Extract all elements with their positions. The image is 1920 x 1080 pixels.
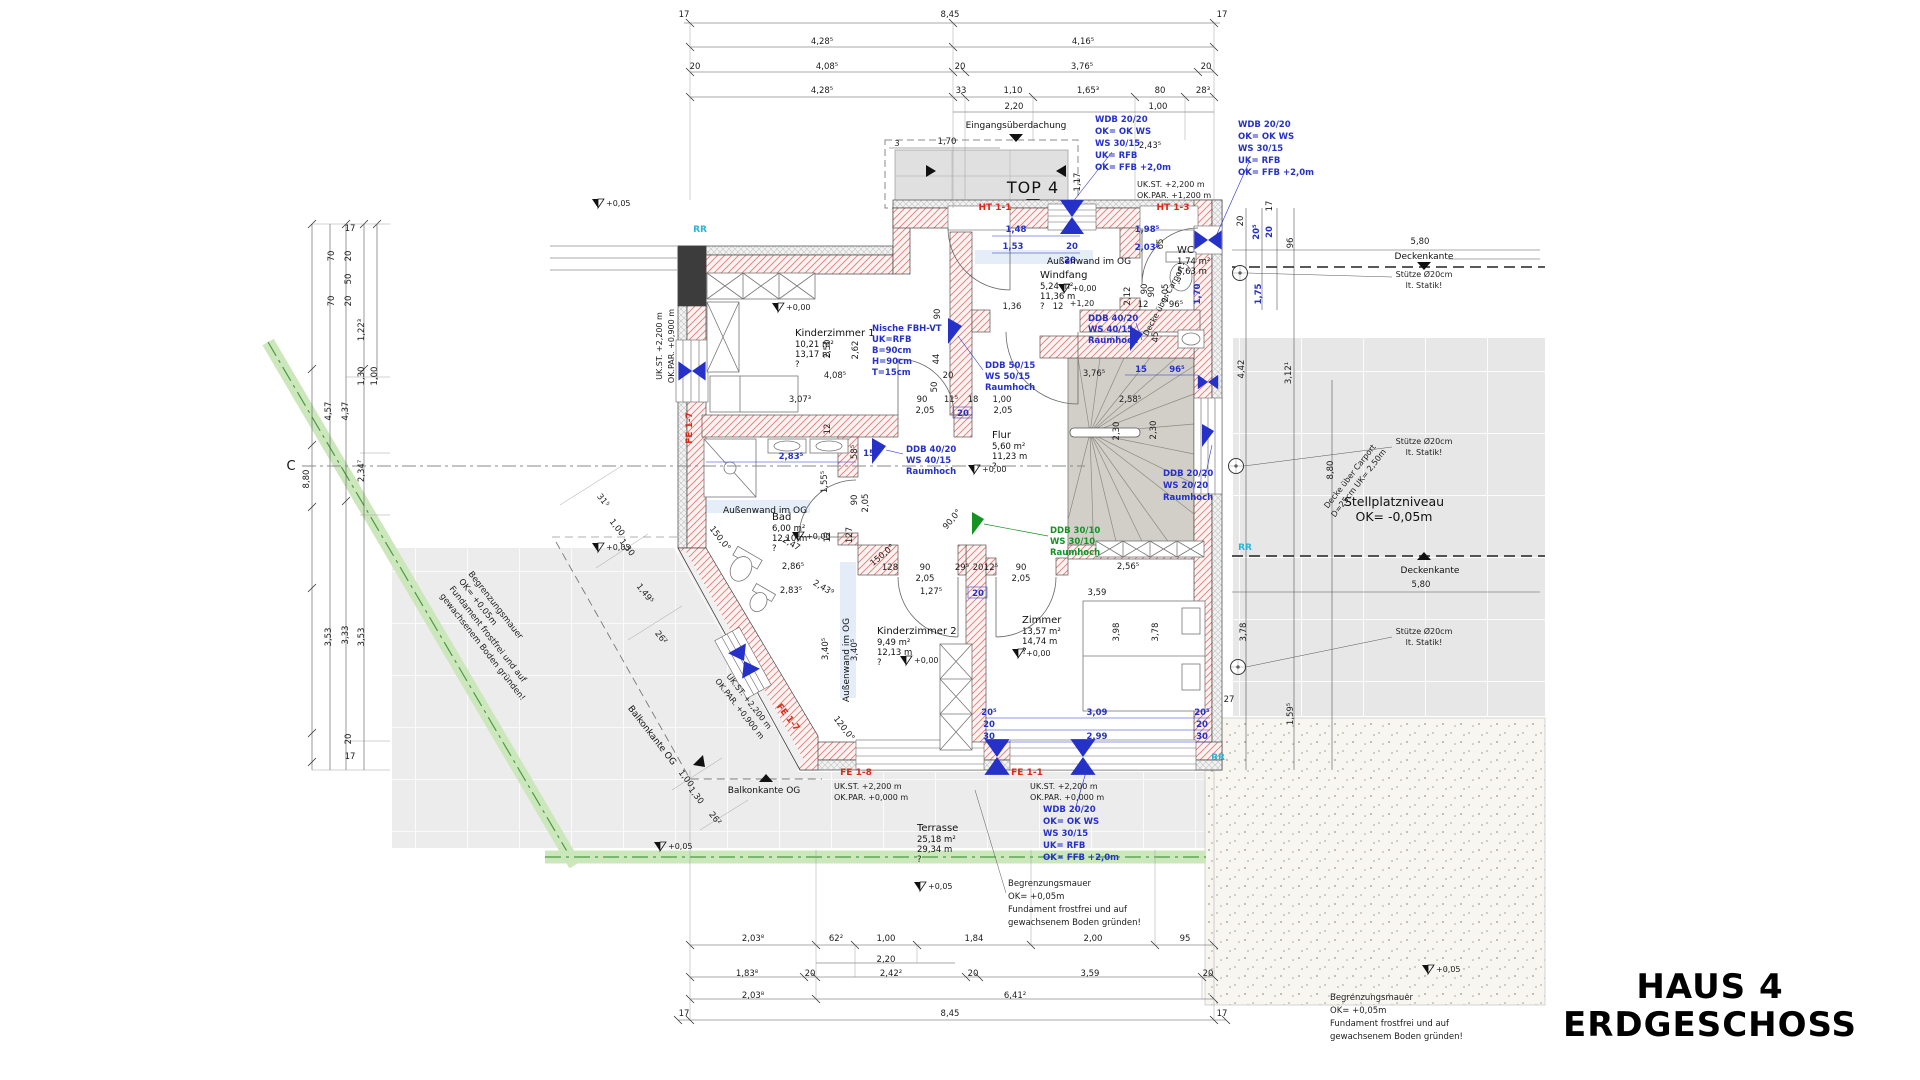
dim-label: HT 1-3 [1156, 203, 1189, 213]
dim-label: 1,00 [877, 934, 896, 944]
dim-label: 33 [956, 86, 967, 96]
annotation-stuetze-2-line1: lt. Statik! [1406, 448, 1443, 457]
level-marker-value: +0,00 [1072, 284, 1097, 293]
dim-label: 1,53 [1003, 242, 1024, 252]
dim-label: 1,17 [1073, 173, 1083, 192]
annotation-ddb-30-green-line0: DDB 30/10 [1050, 526, 1100, 536]
room-note-terrasse: ? [917, 855, 922, 865]
room-area-kinderzimmer-2: 9,49 m² [877, 638, 910, 648]
dim-label: 1,00 [607, 517, 627, 538]
dim-label: 2,05 [916, 574, 935, 584]
dim-label: 1,98⁵ [1135, 225, 1160, 235]
dim-label: 20 [805, 969, 816, 979]
dim-label: 2,30 [1112, 422, 1122, 441]
level-marker-value: +0,05 [928, 882, 953, 891]
dim-label: 3,53 [324, 628, 334, 647]
floor-plan-page: 178,45174,28⁵4,16⁵204,08⁵203,76⁵204,28⁵3… [0, 0, 1920, 1080]
dim-label: 96⁵ [1169, 365, 1185, 375]
dim-label: 96⁵ [1169, 300, 1183, 310]
annotation-stuetze-2-line0: Stütze Ø20cm [1396, 436, 1453, 446]
annotation-stellplatz-line1: OK= -0,05m [1355, 509, 1432, 524]
dim-label: 20 [1201, 62, 1212, 72]
dim-label: 4,57 [324, 402, 334, 421]
annotation-ukst-left-line1: OK.PAR. +0,900 m [667, 309, 676, 383]
annotation-ddb-20-line2: Raumhoch [1163, 493, 1213, 503]
dim-label: 1,27⁵ [920, 587, 942, 597]
dim-label: 2,20 [1005, 102, 1024, 112]
room-perimeter-kinderzimmer-2: 12,13 m [877, 648, 912, 658]
dim-label: 2,05 [861, 494, 871, 513]
dim-label: 8,80 [302, 470, 312, 489]
annotation-begrenzung-right-line2: Fundament frostfrei und auf [1330, 1019, 1450, 1029]
annotation-nische-line3: H=90cm [872, 357, 912, 367]
dim-label: 17 [345, 752, 356, 762]
dim-label: 1,65³ [1077, 86, 1099, 96]
dim-label: 1,10 [1004, 86, 1023, 96]
level-marker-icon [914, 882, 926, 891]
carport-area [1233, 338, 1545, 716]
dim-label: 4,08⁵ [816, 62, 838, 72]
dim-label: 58⁵ [850, 445, 860, 459]
dim-label: 2,30 [1149, 421, 1159, 440]
room-perimeter-kinderzimmer-1: 13,17 m [795, 350, 830, 360]
annotation-wdb-top-b-line4: OK= FFB +2,0m [1238, 168, 1314, 178]
dim-label: 2,42² [880, 969, 902, 979]
annotation-ukst-top-right-line0: UK.ST. +2,200 m [1137, 180, 1205, 189]
dim-label: 2,05 [916, 406, 935, 416]
annotation-wdb-top-a-line2: WS 30/15 [1095, 139, 1140, 149]
dim-label: 62² [829, 934, 843, 944]
dim-label: 1,75 [1254, 283, 1264, 304]
level-marker-value: +0,00 [786, 303, 811, 312]
level-marker-value: +0,00 [982, 465, 1007, 474]
dim-label: 20 [973, 563, 984, 573]
annotation-wdb-bottom-line3: UK= RFB [1043, 841, 1085, 851]
level-marker-value: +0,05 [606, 199, 631, 208]
drawing-title-line1: HAUS 4 [1530, 968, 1890, 1006]
dim-label: 2,20 [877, 955, 896, 965]
dim-label: 4,42 [1237, 360, 1247, 379]
dim-label: 30 [1196, 732, 1208, 742]
dim-label: 20⁵ [1194, 708, 1210, 718]
dim-label: 28³ [1196, 86, 1210, 96]
dim-label: 20 [943, 371, 954, 381]
dim-label: Eingangsüberdachung [966, 121, 1067, 131]
room-area-terrasse: 25,18 m² [917, 835, 956, 845]
dim-label: 2,05 [1012, 574, 1031, 584]
annotation-wdb-top-a-line1: OK= OK WS [1095, 127, 1151, 137]
annotation-wdb-top-b-line3: UK= RFB [1238, 156, 1280, 166]
dim-label: 4,28⁵ [811, 37, 833, 47]
annotation-wdb-bottom-line0: WDB 20/20 [1043, 805, 1096, 815]
dim-label: 1,30 [357, 367, 367, 386]
dim-label: 1,70 [938, 137, 957, 147]
dim-label: 12 [1053, 302, 1064, 312]
annotation-begrenzung-right-line0: Begrenzungsmauer [1330, 993, 1414, 1003]
room-label-flur: Flur [992, 430, 1012, 441]
annotation-stuetze-3-line1: lt. Statik! [1406, 638, 1443, 647]
annotation-wdb-bottom-line4: OK= FFB +2,0m [1043, 853, 1119, 863]
annotation-nische-line2: B=90cm [872, 346, 911, 356]
annotation-ddb-40-wc-line1: WS 40/15 [1088, 325, 1133, 335]
annotation-begrenzung-center-line1: OK= +0,05m [1008, 892, 1064, 902]
dim-label: 20 [344, 296, 354, 307]
room-area-kinderzimmer-1: 10,21 m² [795, 340, 834, 350]
dim-label: 96 [1286, 238, 1296, 249]
dim-label: 4,08⁵ [824, 371, 846, 381]
annotation-wdb-top-a-line3: UK= RFB [1095, 151, 1137, 161]
annotation-begrenzung-center-line3: gewachsenem Boden gründen! [1008, 918, 1141, 928]
dim-label: 1,00 [1149, 102, 1168, 112]
dim-label: 20⁵ [1252, 224, 1262, 240]
annotation-ukst-fe18-line1: OK.PAR. +0,000 m [834, 793, 908, 802]
room-perimeter-zimmer: 14,74 m [1022, 637, 1057, 647]
dim-label: 44 [932, 354, 942, 365]
dim-label: 20 [983, 720, 995, 730]
dim-label: 1,00 [993, 395, 1012, 405]
room-perimeter-flur: 11,23 m [992, 452, 1027, 462]
dim-label: 31⁵ [594, 492, 611, 509]
dim-label: 30 [1068, 225, 1080, 235]
dim-label: 2,12 [1123, 287, 1133, 306]
annotation-ddb-20-line0: DDB 20/20 [1163, 469, 1213, 479]
dim-label: Außenwand im OG [723, 506, 807, 516]
dim-label: TOP 4 [1006, 178, 1059, 197]
annotation-ddb-40-wc-line2: Raumhoch [1088, 336, 1138, 346]
dim-label: 90 [933, 309, 943, 320]
dim-label: RR [1211, 753, 1225, 763]
dim-label: 15 [1135, 365, 1147, 375]
dim-label: 20 [957, 409, 969, 419]
gravel-area [1205, 718, 1545, 1005]
dim-label: 90 [917, 395, 928, 405]
dim-label: 5,80 [1412, 580, 1431, 590]
dim-label: 50 [344, 274, 354, 285]
dim-label: 17 [1217, 10, 1228, 20]
annotation-ddb-30-green-line1: WS 30/10 [1050, 537, 1095, 547]
dim-label: 1,00 [370, 367, 380, 386]
dim-label: C [286, 459, 295, 474]
dim-label: 90 [920, 563, 931, 573]
dim-label: 2,99 [1087, 732, 1108, 742]
level-marker-value: +0,05 [1436, 965, 1461, 974]
annotation-wdb-top-b-line0: WDB 20/20 [1238, 120, 1291, 130]
dim-label: 20 [955, 62, 966, 72]
dim-label: 4,16⁵ [1072, 37, 1094, 47]
dim-label: 2,58⁵ [1119, 395, 1141, 405]
dim-label: 20 [690, 62, 701, 72]
level-marker-value: +0,00 [914, 656, 939, 665]
dim-label: 11⁵ [944, 395, 958, 405]
annotation-nische-line1: UK=RFB [872, 335, 911, 345]
dim-label: HT 1-1 [978, 203, 1011, 213]
annotation-begrenzung-right-line3: gewachsenem Boden gründen! [1330, 1032, 1463, 1042]
dim-label: 1,84 [965, 934, 984, 944]
annotation-ddb-40-bad-line0: DDB 40/20 [906, 445, 956, 455]
dim-label: 2,86⁵ [782, 562, 804, 572]
level-marker-icon [592, 199, 604, 208]
dim-label: 3,09 [1087, 708, 1108, 718]
dim-label: 8,45 [941, 1009, 960, 1019]
dim-label: 1,48 [1006, 225, 1027, 235]
room-label-kinderzimmer-2: Kinderzimmer 2 [877, 626, 957, 637]
dim-label: 17 [1265, 201, 1275, 212]
annotation-wdb-top-b-line2: WS 30/15 [1238, 144, 1283, 154]
dim-label: RR [693, 225, 707, 235]
annotation-stellplatz-line0: Stellplatzniveau [1344, 494, 1444, 509]
dim-label: 3,59 [1081, 969, 1100, 979]
dim-label: 2,34⁷ [357, 459, 367, 482]
annotation-begrenzung-right-line1: OK= +0,05m [1330, 1006, 1386, 1016]
dim-label: 20 [972, 589, 984, 599]
dim-label: 20 [1203, 969, 1214, 979]
dim-label: Außenwand im OG [1047, 257, 1131, 267]
dim-label: 90 [1016, 563, 1027, 573]
dim-label: 2,03⁵ [1135, 243, 1160, 253]
dim-label: 8,80 [1326, 461, 1336, 480]
dim-label: 30 [983, 732, 995, 742]
dim-label: 2,00 [1084, 934, 1103, 944]
dim-label: 20 [1236, 216, 1246, 227]
dim-label: 1,83⁸ [736, 969, 759, 979]
dim-label: 127 [845, 527, 855, 543]
annotation-wdb-top-a-line0: WDB 20/20 [1095, 115, 1148, 125]
dim-label: 3,53 [357, 628, 367, 647]
dim-label: 95 [1180, 934, 1191, 944]
annotation-nische-line4: T=15cm [872, 368, 911, 378]
dim-label: 3,07³ [789, 395, 811, 405]
dim-label: FE 1-1 [1011, 768, 1043, 778]
dim-label: 3,78 [1151, 623, 1161, 642]
dim-label: 70 [327, 251, 337, 262]
annotation-begrenzung-center-line2: Fundament frostfrei und auf [1008, 905, 1128, 915]
annotation-begrenzung-center-line0: Begrenzungsmauer [1008, 879, 1092, 889]
room-note-bad: ? [772, 544, 777, 554]
room-note-kinderzimmer-2: ? [877, 658, 882, 668]
dim-label: 3,33 [341, 626, 351, 645]
dim-label: 29⁵ [955, 563, 969, 573]
dim-label: 2,03⁸ [742, 991, 765, 1001]
annotation-ddb-20-line1: WS 20/20 [1163, 481, 1208, 491]
dim-label: 6,41² [1004, 991, 1026, 1001]
room-label-bad: Bad [772, 512, 791, 523]
annotation-ddb-40-wc-line0: DDB 40/20 [1088, 314, 1138, 324]
dim-label: FE 1-7 [685, 412, 695, 444]
dim-label: 12 [1138, 300, 1149, 310]
dim-label: 2,03⁸ [742, 934, 765, 944]
room-label-wc: WC [1177, 245, 1194, 256]
dim-label: 90 [1147, 287, 1157, 298]
dim-label: 3,78 [1239, 623, 1249, 642]
annotation-wdb-top-b-line1: OK= OK WS [1238, 132, 1294, 142]
dim-label: 1,36 [1003, 302, 1022, 312]
dim-label: Balkonkante OG [728, 786, 801, 796]
room-perimeter-terrasse: 29,34 m [917, 845, 952, 855]
dim-label: 3,76⁵ [1071, 62, 1093, 72]
dim-label: 20 [1265, 226, 1275, 238]
dim-label: 20 [344, 251, 354, 262]
dim-label: 2,56⁵ [1117, 562, 1139, 572]
dim-label: 17 [679, 10, 690, 20]
dim-label: 20⁵ [981, 708, 997, 718]
annotation-wdb-bottom-line1: OK= OK WS [1043, 817, 1099, 827]
dim-label: 17 [345, 224, 356, 234]
annotation-wdb-bottom-line2: WS 30/15 [1043, 829, 1088, 839]
dim-label: 1,22³ [357, 319, 367, 341]
annotation-stuetze-1-line0: Stütze Ø20cm [1396, 269, 1453, 279]
dim-label: 2,05 [994, 406, 1013, 416]
room-note-kinderzimmer-1: ? [795, 360, 800, 370]
dim-label: Deckenkante [1395, 252, 1454, 262]
dim-label: 17 [1217, 1009, 1228, 1019]
dim-label: 1,55⁵ [820, 471, 830, 493]
annotation-ddb-50-line2: Raumhoch [985, 383, 1035, 393]
annotation-ukst-left-line0: UK.ST. +2,200 m [655, 312, 664, 380]
dim-label: 5,80 [1411, 237, 1430, 247]
dim-label: 3,40⁵ [821, 638, 831, 660]
dim-label: 20 [344, 734, 354, 745]
annotation-ukst-top-right-line1: OK.PAR. +1,200 m [1137, 191, 1211, 200]
dim-label: 2,43⁵ [1139, 141, 1161, 151]
dim-label: Deckenkante [1401, 566, 1460, 576]
dim-label: 4,37 [341, 402, 351, 421]
room-label-terrasse: Terrasse [916, 823, 958, 834]
dim-label: 128 [882, 563, 898, 573]
room-note-windfang: ? [1040, 302, 1045, 312]
dim-label: Außenwand im OG [842, 618, 852, 702]
room-label-kinderzimmer-1: Kinderzimmer 1 [795, 328, 875, 339]
level-marker-value: +0,00 [1026, 649, 1051, 658]
dim-label: 2,83⁵ [779, 452, 804, 462]
dim-label: 2,83⁵ [780, 586, 802, 596]
dim-label: 3,12¹ [1284, 362, 1294, 384]
room-area-zimmer: 13,57 m² [1022, 627, 1061, 637]
level-marker-value: +0,05 [606, 543, 631, 552]
room-perimeter-windfang: 11,36 m [1040, 292, 1075, 302]
dim-label: 12⁵ [984, 563, 998, 573]
room-area-flur: 5,60 m² [992, 442, 1025, 452]
annotation-ddb-30-green-line2: Raumhoch [1050, 548, 1100, 558]
annotation-wdb-top-a-line4: OK= FFB +2,0m [1095, 163, 1171, 173]
dim-label: 1,70 [1193, 283, 1203, 304]
level-marker-value: +0,05 [668, 842, 693, 851]
dim-label: 20 [1066, 242, 1078, 252]
dim-label: 50 [930, 382, 940, 393]
dim-label: 20 [1196, 720, 1208, 730]
dim-label: 2,62 [851, 341, 861, 360]
dim-label: 3,98 [1112, 623, 1122, 642]
annotation-ukst-fe18-line0: UK.ST. +2,200 m [834, 782, 902, 791]
level-marker-value: +0,00 [806, 532, 831, 541]
room-area-wc: 1,74 m² [1177, 257, 1210, 267]
drawing-title-line2: ERDGESCHOSS [1530, 1006, 1890, 1044]
annotation-ukst-fe11-line0: UK.ST. +2,200 m [1030, 782, 1098, 791]
dim-label: FE 1-8 [840, 768, 872, 778]
dim-label: 45 [1151, 332, 1161, 343]
dim-label: 70 [327, 296, 337, 307]
annotation-ddb-40-bad-line1: WS 40/15 [906, 456, 951, 466]
annotation-ddb-50-line1: WS 50/15 [985, 372, 1030, 382]
annotation-stuetze-3-line0: Stütze Ø20cm [1396, 626, 1453, 636]
annotation-ddb-50-line0: DDB 50/15 [985, 361, 1035, 371]
annotation-ddb-40-bad-line2: Raumhoch [906, 467, 956, 477]
annotation-stuetze-1-line1: lt. Statik! [1406, 281, 1443, 290]
dim-label: 1,59⁵ [1286, 703, 1296, 725]
drawing-title: HAUS 4 ERDGESCHOSS [1530, 968, 1890, 1044]
dim-label: 12 [823, 424, 833, 435]
dim-label: 3,76⁵ [1083, 369, 1105, 379]
dim-label: 80 [1155, 86, 1166, 96]
floor-plan-drawing: 178,45174,28⁵4,16⁵204,08⁵203,76⁵204,28⁵3… [0, 0, 1920, 1080]
dim-label: 3,59 [1088, 588, 1107, 598]
room-area-bad: 6,00 m² [772, 524, 805, 534]
dim-label: 90 [850, 495, 860, 506]
dim-label: 15 [863, 449, 875, 459]
annotation-nische-line0: Nische FBH-VT [872, 324, 942, 334]
dim-label: 20 [968, 969, 979, 979]
dim-label: 18 [968, 395, 979, 405]
dim-label: 8,45 [941, 10, 960, 20]
dim-label: 27 [1224, 695, 1235, 705]
room-label-windfang: Windfang [1040, 270, 1087, 281]
dim-label: 4,28⁵ [811, 86, 833, 96]
dim-label: RR [1238, 543, 1252, 553]
dim-label: 17 [679, 1009, 690, 1019]
room-label-zimmer: Zimmer [1022, 615, 1062, 626]
annotation-ukst-fe11-line1: OK.PAR. +0,000 m [1030, 793, 1104, 802]
dim-label: 3 [894, 139, 899, 148]
